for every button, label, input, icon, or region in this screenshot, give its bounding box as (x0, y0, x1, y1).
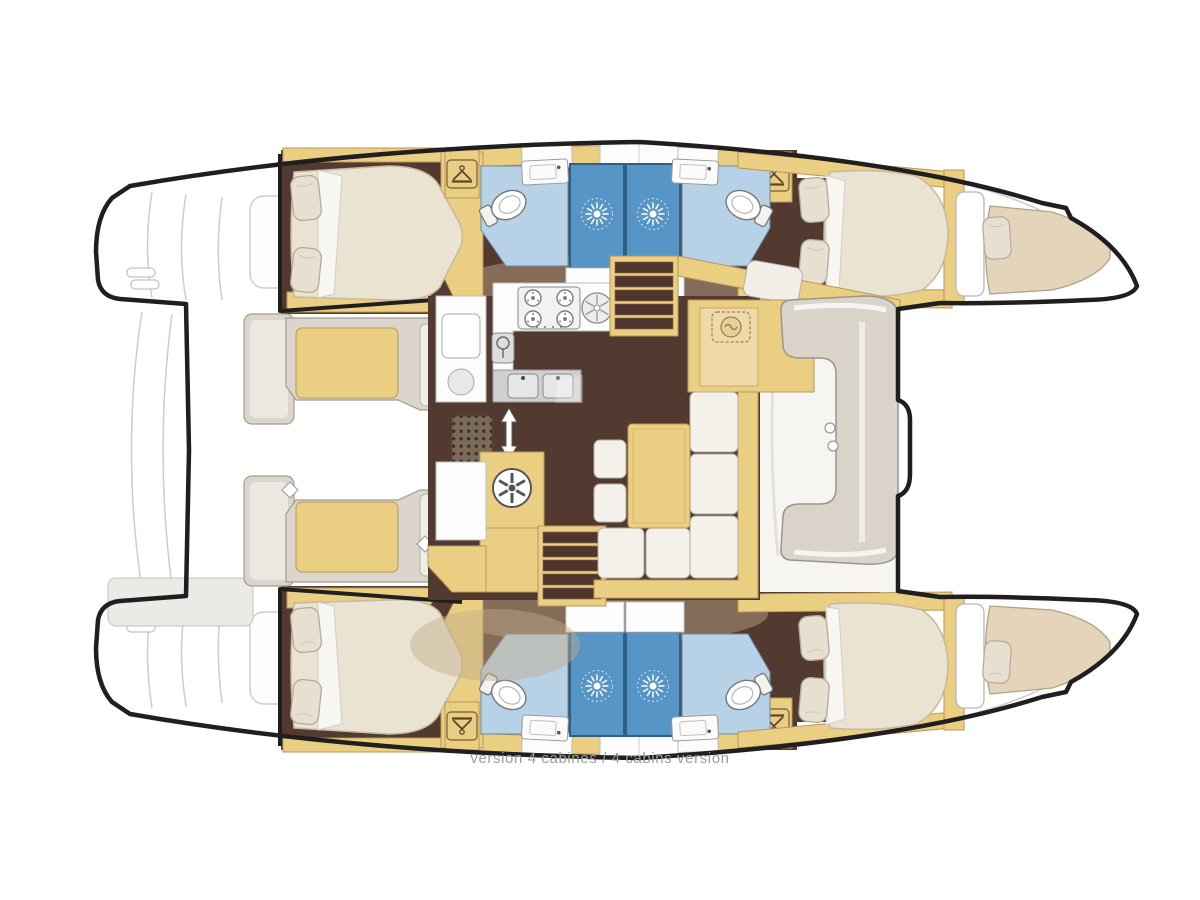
stool (594, 484, 626, 522)
round-sink-icon (582, 293, 612, 323)
cup-holder (828, 441, 838, 451)
round-appliance-icon (448, 369, 474, 395)
fan-wheel-icon (493, 469, 531, 507)
fridge-icon (442, 314, 480, 358)
stool (594, 440, 626, 478)
floor-hatch (556, 376, 582, 402)
port-companionway-stairs (610, 256, 678, 336)
cup-holder (825, 423, 835, 433)
salon-table (628, 424, 690, 528)
plan-caption: version 4 cabines / 4 cabins version (0, 750, 1200, 767)
boat-floorplan-page: version 4 cabines / 4 cabins version (0, 0, 1200, 900)
